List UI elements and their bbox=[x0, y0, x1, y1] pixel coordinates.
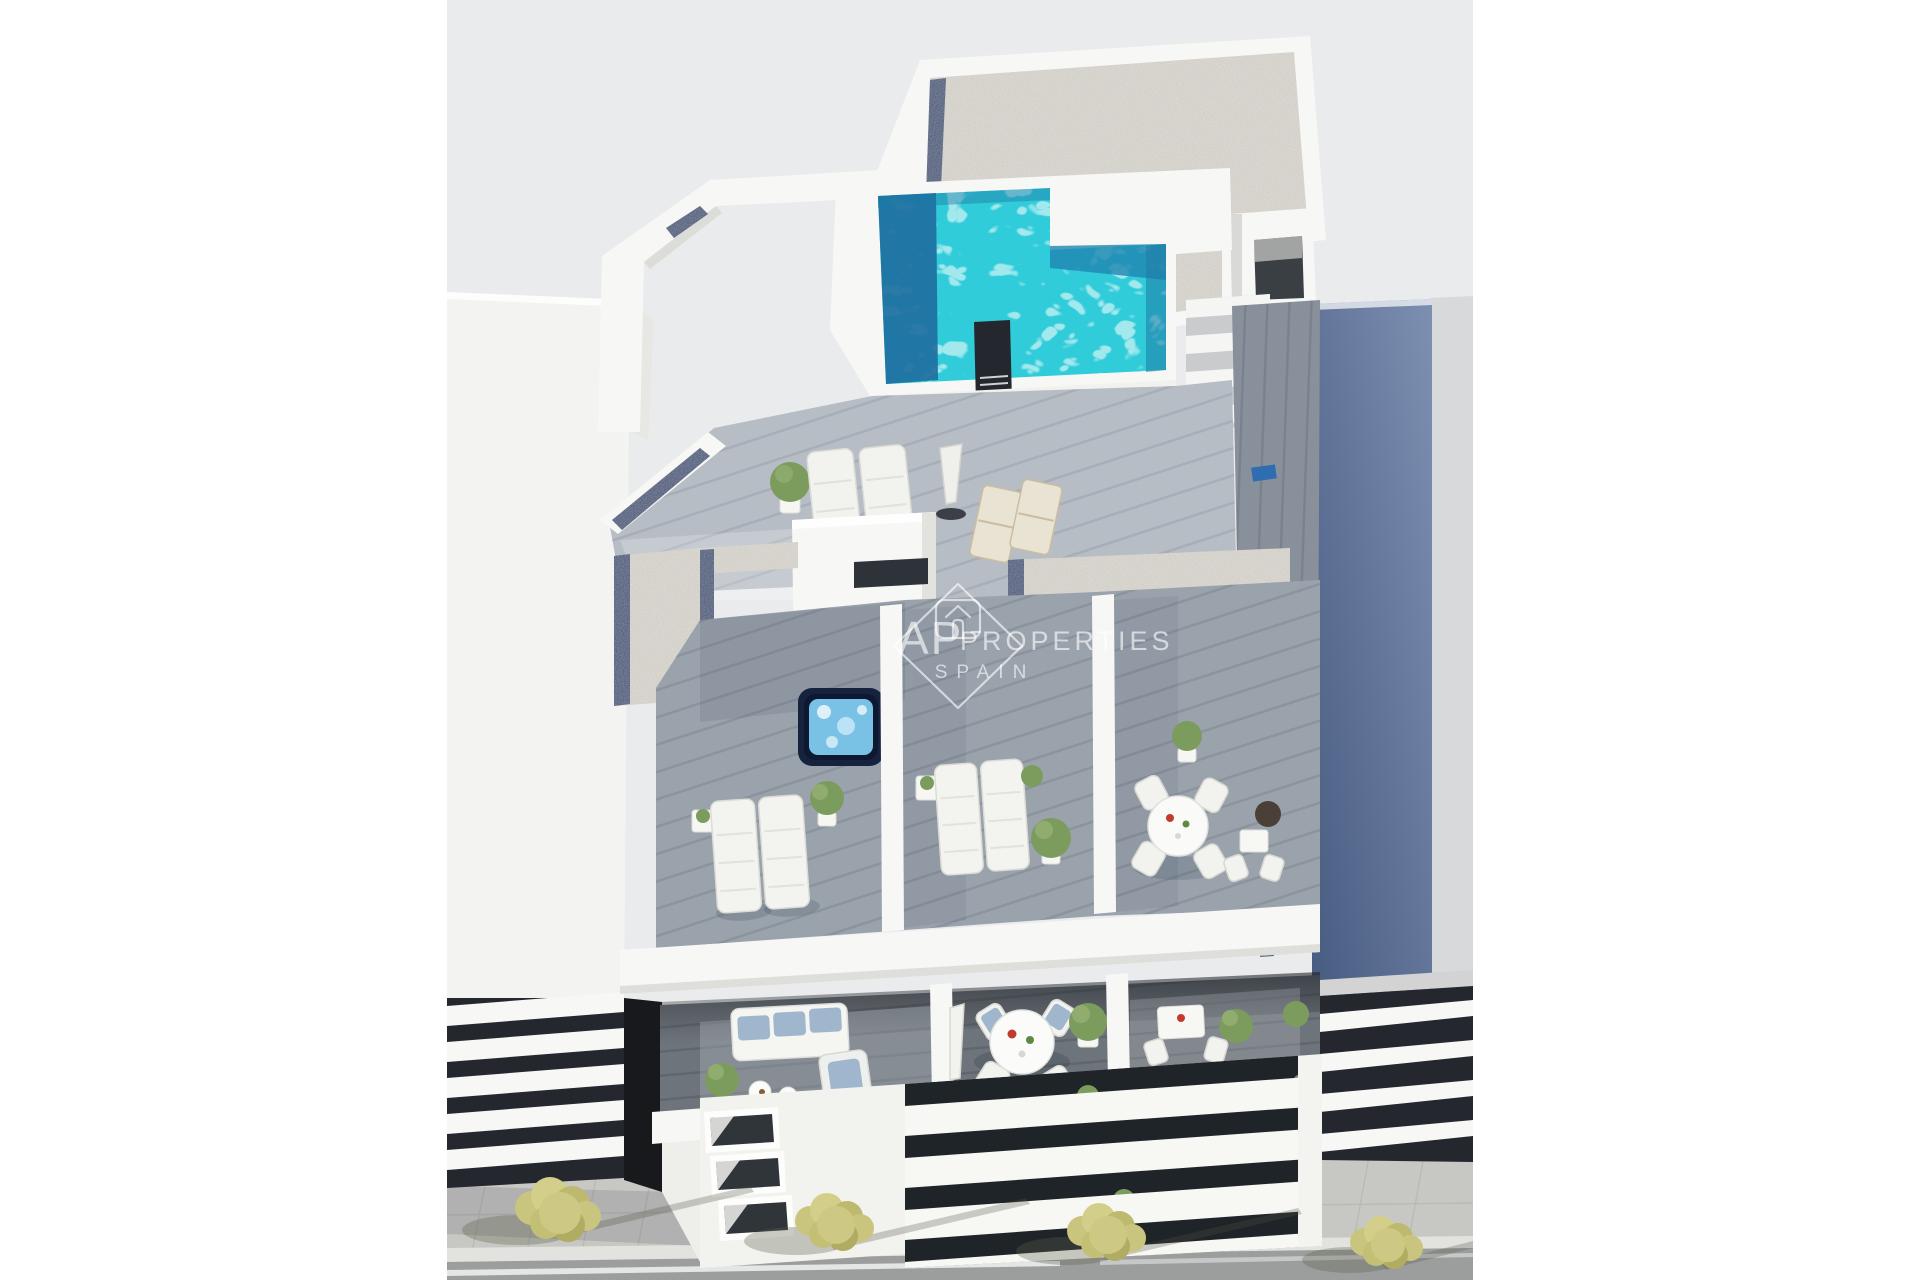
facade-slit-window bbox=[704, 1107, 780, 1153]
balcony-divider bbox=[1106, 973, 1130, 1082]
round-table bbox=[990, 1010, 1054, 1074]
right-building-shadow-wall bbox=[1312, 299, 1432, 1012]
right-building-sunlit-face bbox=[1430, 296, 1473, 1012]
render-photo: AP PROPERTIES SPAIN bbox=[0, 0, 1920, 1280]
balcony-plant bbox=[1283, 1001, 1309, 1027]
watermark-brand-prefix: AP bbox=[898, 612, 963, 664]
jacuzzi bbox=[798, 688, 894, 766]
sofa bbox=[731, 1003, 850, 1061]
pool-deep-end bbox=[878, 193, 938, 384]
stair-head-box bbox=[1230, 208, 1316, 306]
render-scene: AP PROPERTIES SPAIN bbox=[0, 0, 1920, 1280]
side-table bbox=[1240, 830, 1268, 852]
watermark-brand-name: PROPERTIES bbox=[960, 626, 1174, 656]
dark-parasol bbox=[1255, 801, 1281, 827]
right-neighbour-building bbox=[1295, 296, 1473, 1162]
round-dining-table bbox=[1148, 796, 1208, 856]
pool-terrace bbox=[830, 168, 1232, 416]
shadow-gap bbox=[624, 998, 662, 1192]
watermark-brand-region: SPAIN bbox=[935, 662, 1036, 683]
pool-arm-right-shadow bbox=[1146, 244, 1166, 372]
